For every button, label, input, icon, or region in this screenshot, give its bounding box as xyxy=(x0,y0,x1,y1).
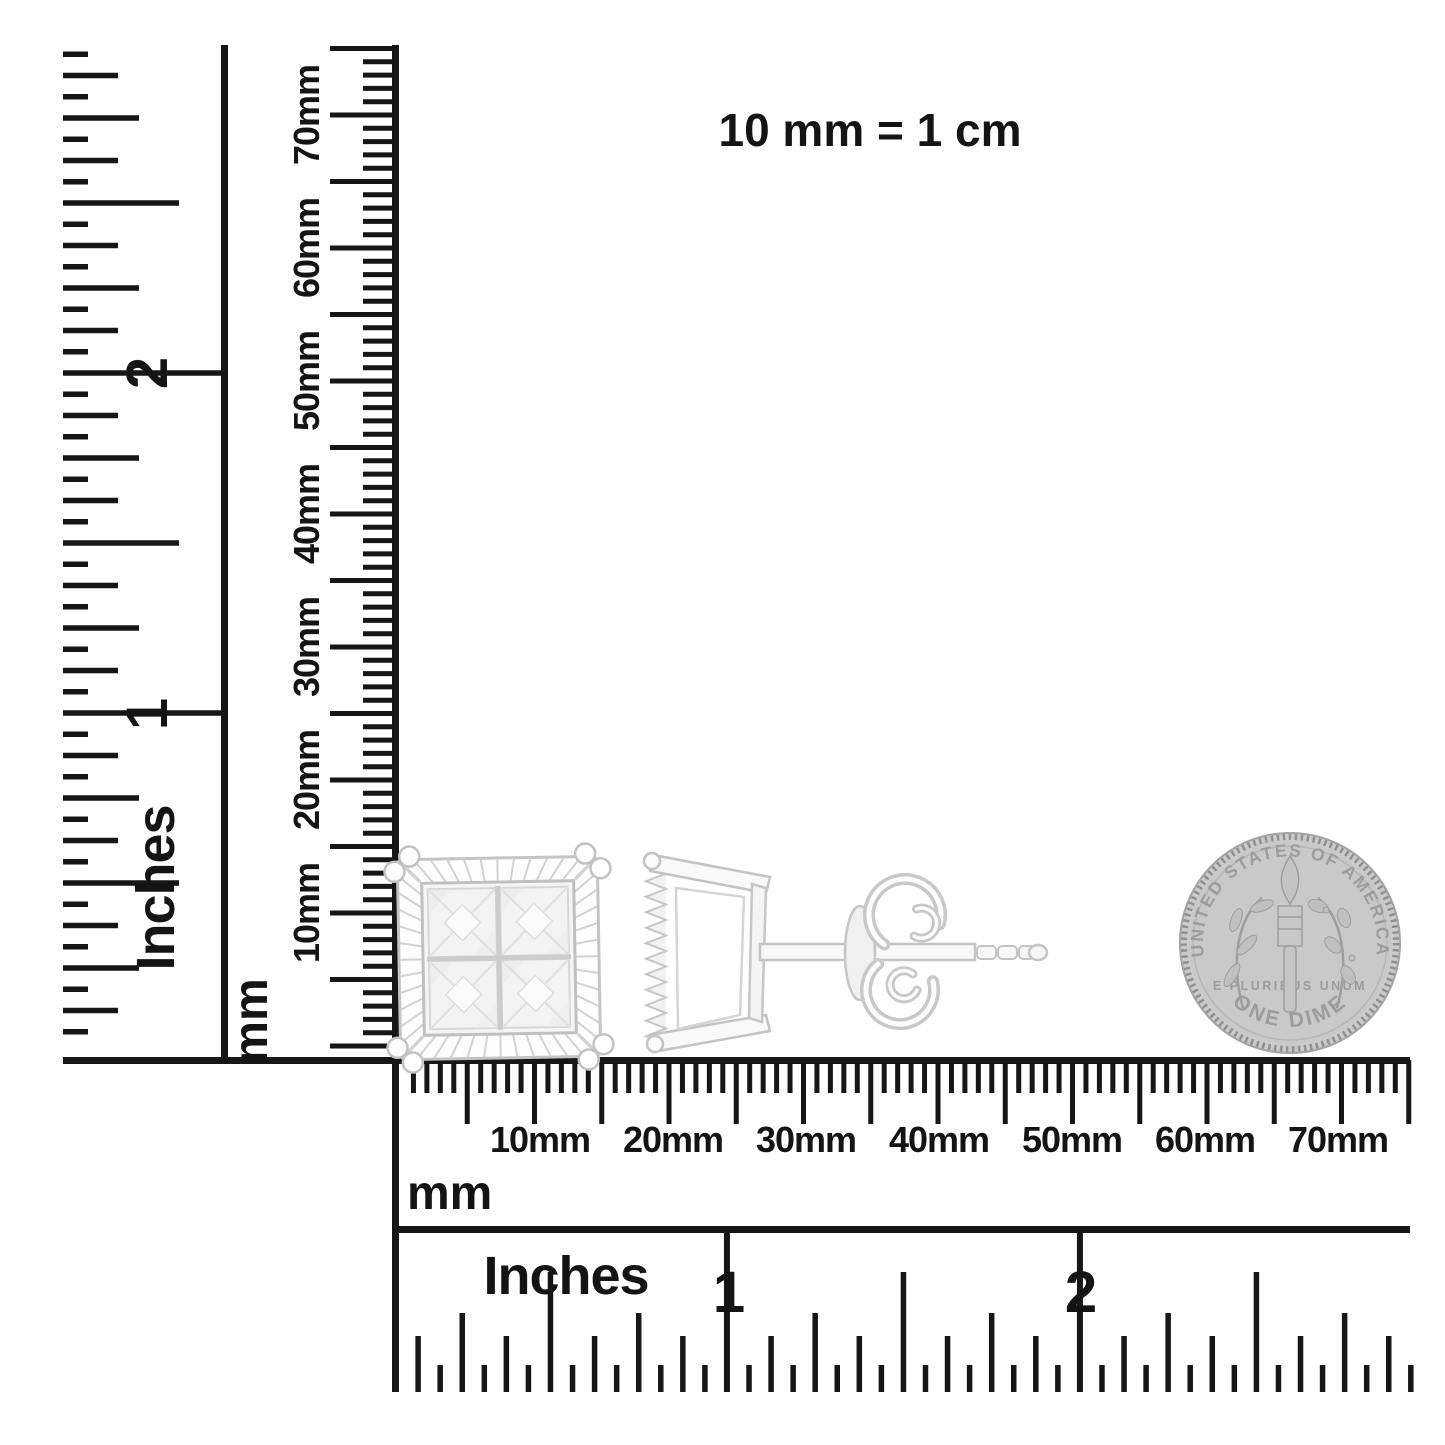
left-mm-ruler-label-30mm: 30mm xyxy=(286,577,328,717)
bottom-mm-ruler-label-60mm: 60mm xyxy=(1135,1119,1275,1161)
basket-bottom-prong-tip xyxy=(647,1036,663,1052)
stone-divider-horizontal xyxy=(427,957,571,960)
left-mm-ruler-label-40mm: 40mm xyxy=(286,444,328,584)
bottom-mm-ruler-label-30mm: 30mm xyxy=(736,1119,876,1161)
bottom-inch-ruler-number-1: 1 xyxy=(694,1263,764,1323)
basket-serrated-edge xyxy=(646,858,666,1044)
left-mm-ruler-unit-label: mm xyxy=(227,961,277,1081)
left-mm-ruler-ticks xyxy=(330,49,394,1047)
left-inch-ruler-unit-label: Inches xyxy=(128,778,184,998)
product-scale-photo: UNITED STATES OF AMERICA E PLURIBUS UNUM… xyxy=(0,0,1445,1445)
post-ridge xyxy=(998,946,1017,959)
post-ridge xyxy=(977,946,996,959)
left-inch-ruler-number-1: 1 xyxy=(118,679,178,749)
bottom-mm-ruler-label-10mm: 10mm xyxy=(470,1119,610,1161)
earring-side-view xyxy=(644,853,1047,1052)
left-mm-ruler-label-10mm: 10mm xyxy=(286,843,328,983)
left-mm-ruler-label-60mm: 60mm xyxy=(286,178,328,318)
post-tip xyxy=(1029,945,1047,960)
earring-front-view xyxy=(384,843,614,1073)
scale-note: 10 mm = 1 cm xyxy=(640,103,1100,157)
bottom-mm-ruler-label-20mm: 20mm xyxy=(603,1119,743,1161)
left-mm-ruler-label-70mm: 70mm xyxy=(286,45,328,185)
bottom-mm-ruler-unit-label: mm xyxy=(407,1172,492,1216)
bottom-mm-ruler-label-40mm: 40mm xyxy=(869,1119,1009,1161)
serration-path xyxy=(646,858,666,1044)
left-mm-ruler-label-20mm: 20mm xyxy=(286,710,328,850)
horizontal-ruler-divider-line xyxy=(392,1226,1410,1233)
basket-opening xyxy=(676,888,744,1029)
basket-top-prong-tip xyxy=(644,853,660,869)
left-mm-ruler-label-50mm: 50mm xyxy=(286,311,328,451)
scene-graphics: UNITED STATES OF AMERICA E PLURIBUS UNUM… xyxy=(0,0,1445,1445)
bottom-inch-ruler-unit-label: Inches xyxy=(446,1249,686,1303)
left-inch-ruler-number-2: 2 xyxy=(118,338,178,408)
bottom-mm-ruler-label-70mm: 70mm xyxy=(1268,1119,1408,1161)
dime-coin: UNITED STATES OF AMERICA E PLURIBUS UNUM… xyxy=(1180,833,1400,1053)
bottom-inch-ruler-number-2: 2 xyxy=(1046,1263,1116,1323)
left-inch-ruler-edge-line xyxy=(221,45,228,1063)
bottom-mm-ruler-label-50mm: 50mm xyxy=(1002,1119,1142,1161)
bottom-mm-ruler-ticks xyxy=(413,1060,1408,1124)
